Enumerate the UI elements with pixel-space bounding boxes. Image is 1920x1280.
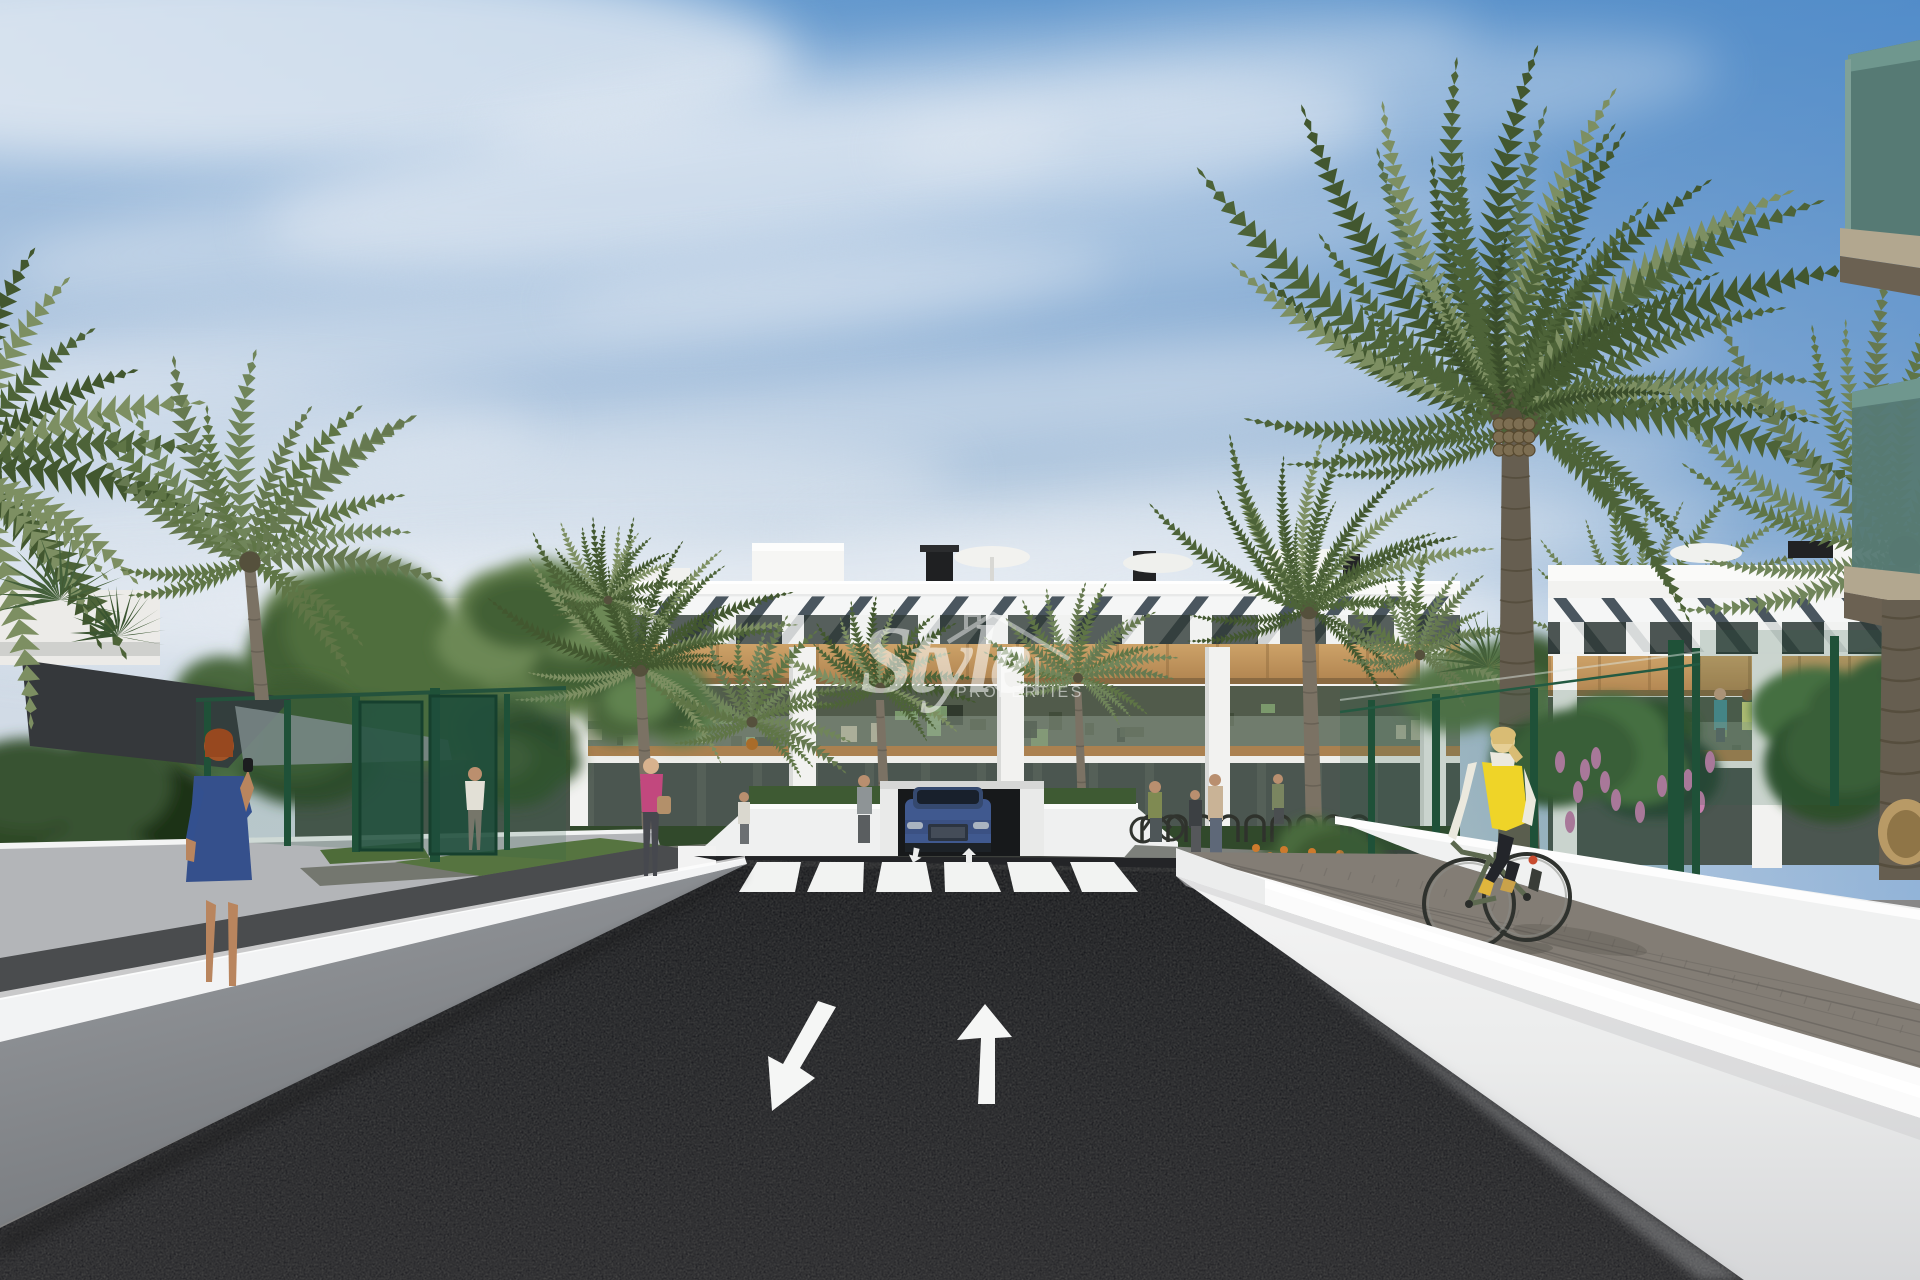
svg-text:PROPERTIES: PROPERTIES (956, 684, 1084, 701)
